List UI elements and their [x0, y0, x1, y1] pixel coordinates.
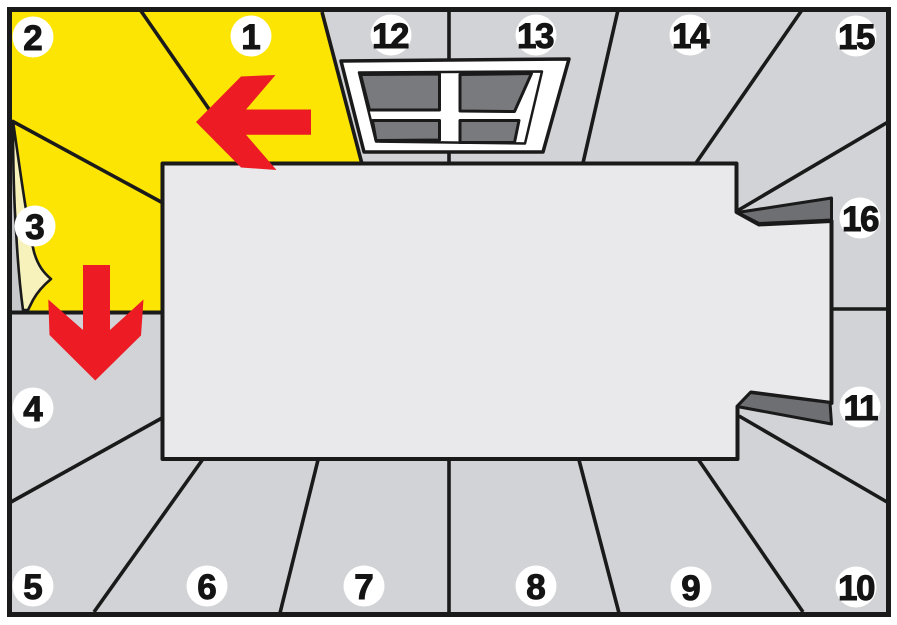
svg-text:14: 14	[672, 17, 710, 56]
svg-text:5: 5	[23, 568, 42, 607]
svg-text:16: 16	[842, 200, 879, 239]
svg-text:11: 11	[844, 389, 879, 428]
svg-text:10: 10	[838, 569, 875, 608]
svg-text:7: 7	[354, 568, 373, 607]
svg-text:12: 12	[372, 17, 409, 56]
svg-text:3: 3	[25, 208, 44, 247]
svg-text:1: 1	[241, 18, 260, 57]
svg-text:4: 4	[23, 390, 43, 429]
svg-text:15: 15	[838, 18, 875, 57]
svg-text:6: 6	[197, 568, 216, 607]
svg-text:8: 8	[526, 568, 545, 607]
svg-text:9: 9	[681, 569, 700, 608]
svg-text:2: 2	[23, 19, 42, 58]
svg-text:13: 13	[517, 17, 554, 56]
